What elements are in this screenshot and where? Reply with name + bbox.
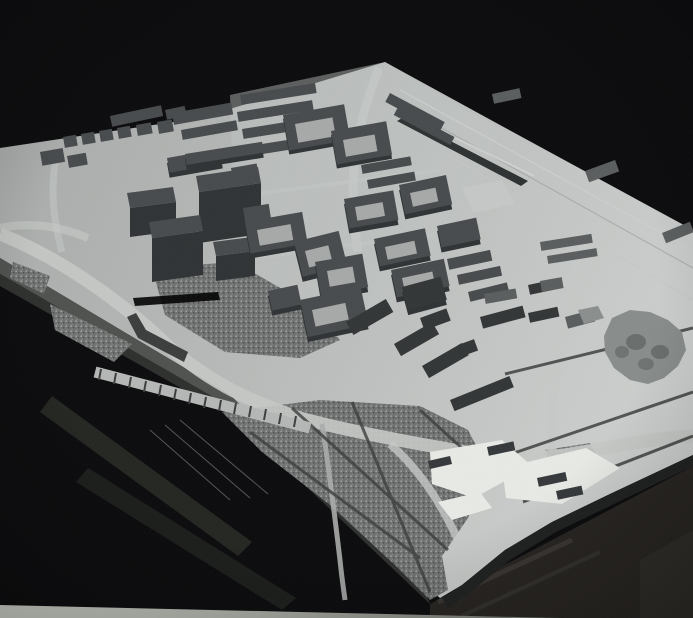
photo-architectural-model: Photograph of an architectural urban mas… bbox=[0, 0, 693, 618]
vignette-overlay bbox=[0, 0, 693, 618]
model-photo-canvas: Photograph of an architectural urban mas… bbox=[0, 0, 693, 618]
